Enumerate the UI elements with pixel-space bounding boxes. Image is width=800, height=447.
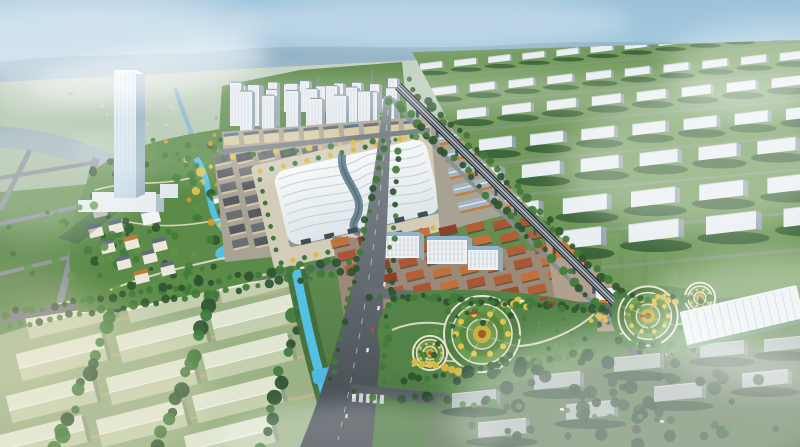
aerial-masterplan-rendering: Bird's-eye master-plan rendering of a ne… [0, 0, 800, 447]
scene-svg: Bird's-eye master-plan rendering of a ne… [0, 0, 800, 447]
